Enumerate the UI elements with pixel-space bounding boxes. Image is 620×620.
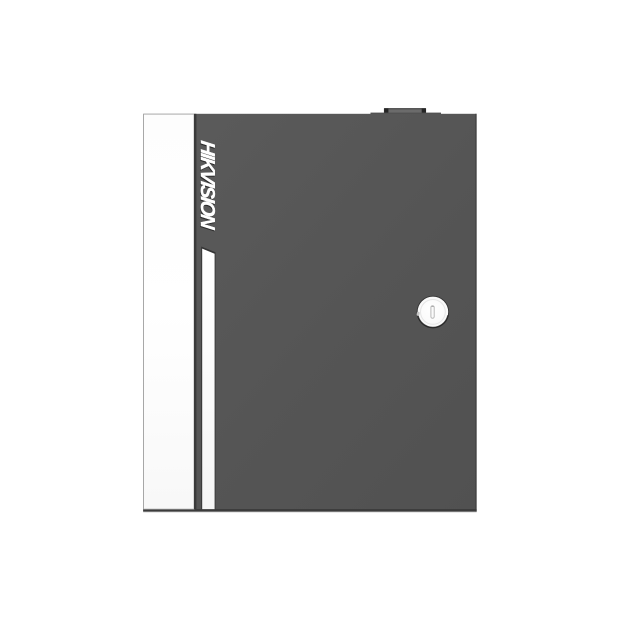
svg-text:HIKVISION: HIKVISION bbox=[196, 139, 218, 230]
